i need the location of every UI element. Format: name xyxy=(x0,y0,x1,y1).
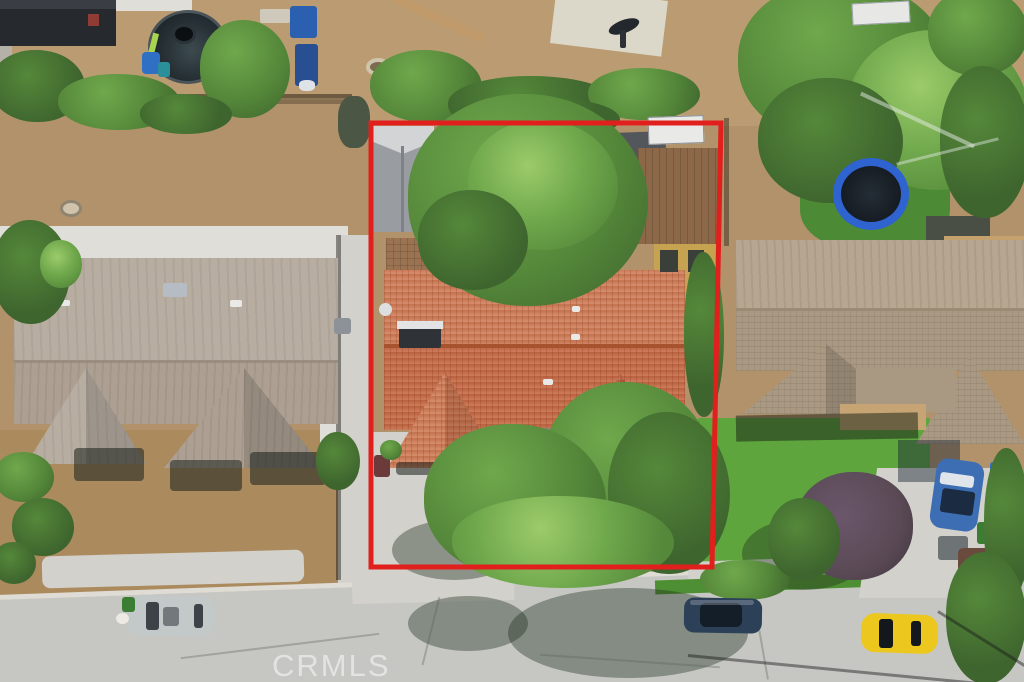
property-boundary-overlay xyxy=(0,0,1024,682)
watermark: CRMLS xyxy=(272,648,391,682)
aerial-photo: CRMLS xyxy=(0,0,1024,682)
property-boundary-polygon xyxy=(371,123,721,567)
